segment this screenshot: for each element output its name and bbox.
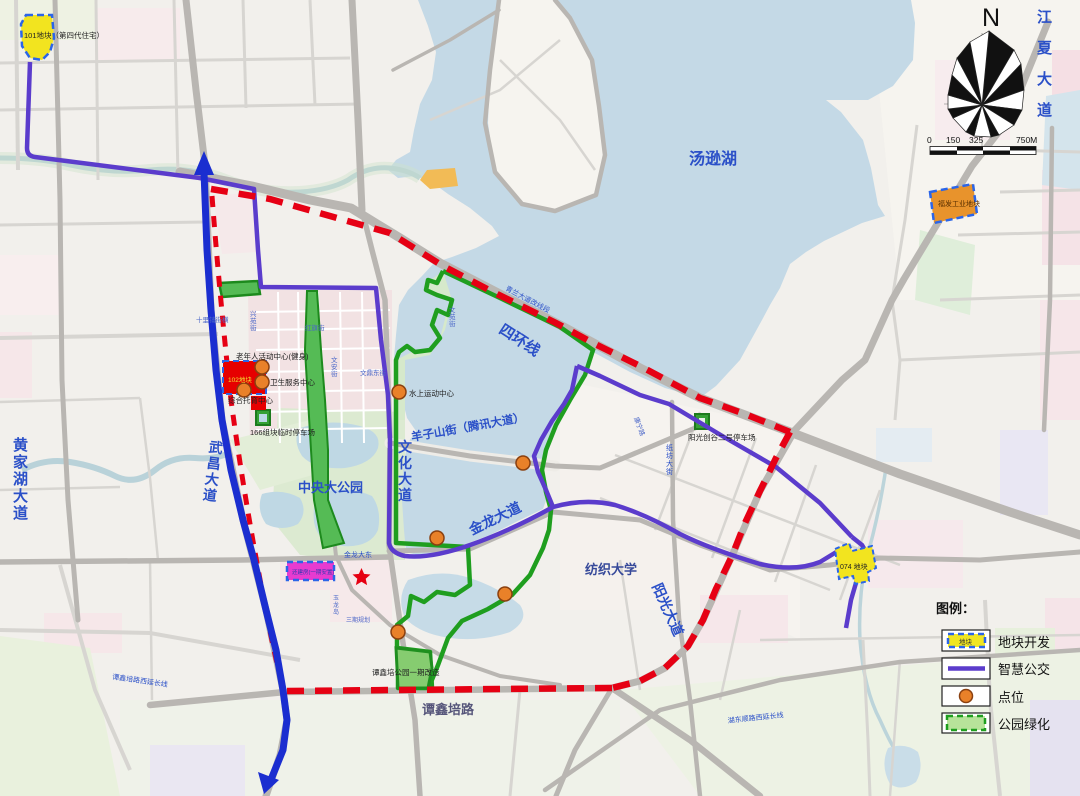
svg-text:文安街: 文安街 [331,355,338,378]
svg-text:卫生服务中心: 卫生服务中心 [270,377,315,387]
svg-text:金龙大东: 金龙大东 [344,550,372,559]
svg-text:福发工业地块: 福发工业地块 [938,199,980,208]
svg-text:黄家湖大道: 黄家湖大道 [13,436,28,522]
svg-text:101地块（第四代住宅）: 101地块（第四代住宅） [24,30,104,40]
svg-text:N: N [982,4,1000,32]
svg-text:纺织大学: 纺织大学 [585,562,637,577]
svg-text:公园绿化: 公园绿化 [998,717,1050,732]
svg-text:166组块临时停车场: 166组块临时停车场 [250,427,316,437]
svg-text:750M: 750M [1016,135,1037,145]
svg-text:汤逊湖: 汤逊湖 [689,150,737,168]
svg-text:三期规划: 三期规划 [346,616,370,624]
svg-text:纸坊大街: 纸坊大街 [666,443,673,476]
svg-text:还建房(一期安置): 还建房(一期安置) [292,568,334,576]
svg-text:中央大公园: 中央大公园 [298,480,363,495]
svg-text:老年人活动中心(健身): 老年人活动中心(健身) [236,351,309,361]
svg-text:0: 0 [927,135,932,145]
svg-text:图例：: 图例： [936,601,975,616]
svg-text:智慧公交: 智慧公交 [998,662,1050,677]
svg-text:阳光创谷二号停车场: 阳光创谷二号停车场 [688,432,756,442]
svg-text:文化大道: 文化大道 [398,439,413,503]
svg-text:地块: 地块 [959,637,973,646]
svg-text:102地块: 102地块 [228,375,252,384]
svg-text:兴苑街: 兴苑街 [250,309,257,332]
svg-text:325: 325 [969,135,983,145]
svg-text:玉龙岛: 玉龙岛 [333,595,339,616]
svg-text:十里铺街横: 十里铺街横 [196,315,229,324]
svg-text:红旗街: 红旗街 [305,323,325,332]
svg-text:点位: 点位 [998,690,1024,705]
svg-text:谭鑫培公园一期改造: 谭鑫培公园一期改造 [372,667,440,677]
svg-text:文鼎东街: 文鼎东街 [360,368,387,377]
svg-text:地块开发: 地块开发 [998,635,1050,650]
svg-text:150: 150 [946,135,960,145]
svg-text:文苑街: 文苑街 [449,305,456,328]
svg-text:074 地块: 074 地块 [840,562,868,571]
svg-text:综合托育中心: 综合托育中心 [228,395,273,405]
svg-text:水上运动中心: 水上运动中心 [409,388,454,398]
svg-text:谭鑫培路: 谭鑫培路 [422,702,475,717]
